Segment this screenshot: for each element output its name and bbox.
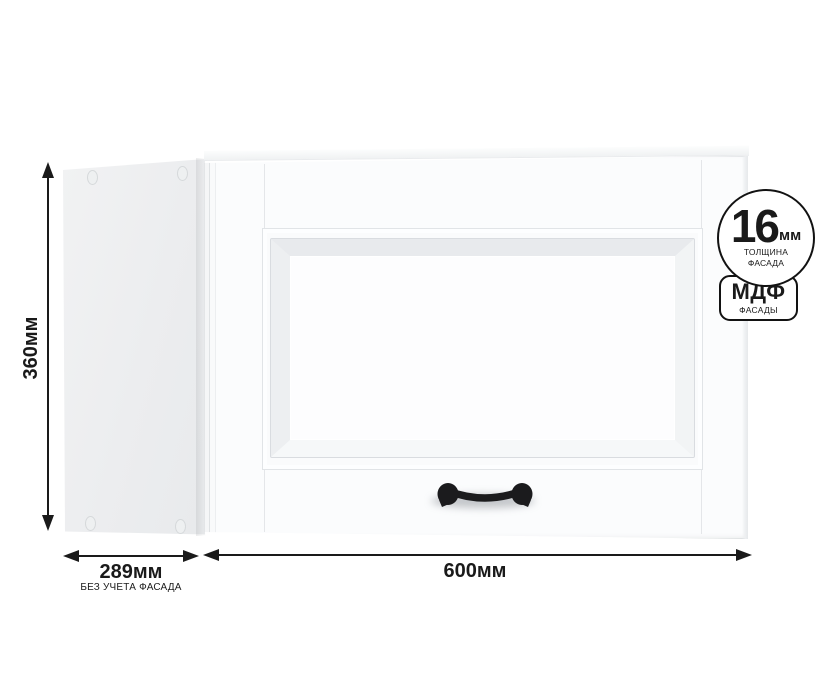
arrowhead-up-icon xyxy=(42,162,54,178)
door-edge-left xyxy=(204,156,219,539)
cam-hole xyxy=(175,519,186,534)
dimension-depth-label: 289мм xyxy=(66,561,196,584)
dimension-height-label: 360мм xyxy=(20,292,42,404)
cabinet-door xyxy=(204,156,748,539)
thickness-value: 16 xyxy=(731,209,778,245)
arrowhead-down-icon xyxy=(42,515,54,531)
cam-hole xyxy=(87,170,98,185)
cabinet-handle-icon xyxy=(435,481,535,511)
arrowhead-right-icon xyxy=(736,549,752,561)
cam-hole xyxy=(177,166,188,181)
dimension-line-height xyxy=(47,176,49,518)
frame-joint-line xyxy=(701,470,702,534)
material-badge-caption: ФАСАДЫ xyxy=(739,305,778,315)
arrowhead-left-icon xyxy=(203,549,219,561)
dimension-line-width xyxy=(216,554,737,556)
thickness-caption-line1: ТОЛЩИНА xyxy=(744,247,788,258)
thickness-caption-line2: ФАСАДА xyxy=(748,258,784,269)
frame-joint-line xyxy=(264,164,265,228)
thickness-unit: мм xyxy=(779,228,801,243)
cabinet-side-panel xyxy=(63,158,205,536)
frame-joint-line xyxy=(701,160,702,228)
dimension-line-depth xyxy=(76,555,186,557)
dimension-depth-note: БЕЗ УЧЕТА ФАСАДА xyxy=(36,582,226,593)
dimension-width-label: 600мм xyxy=(350,560,600,583)
product-diagram: 360мм 289мм БЕЗ УЧЕТА ФАСАДА 600мм МДФ Ф… xyxy=(0,0,816,700)
cam-hole xyxy=(85,516,96,531)
thickness-badge: 16 мм ТОЛЩИНА ФАСАДА xyxy=(717,189,815,287)
frame-joint-line xyxy=(264,470,265,532)
door-raised-panel xyxy=(271,239,694,457)
